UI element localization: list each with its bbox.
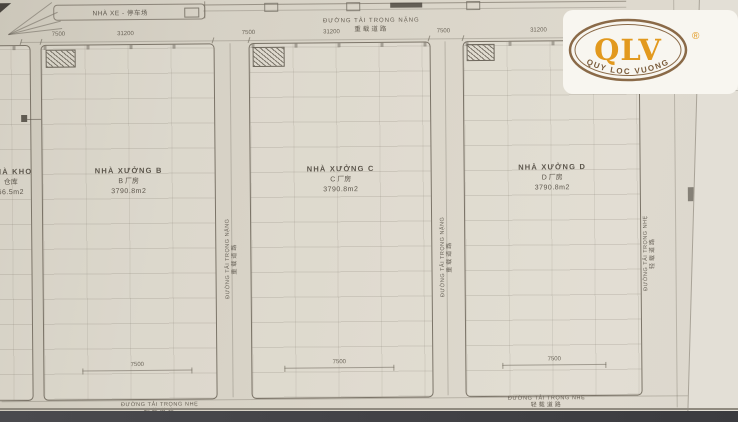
- building-d-inner-dim: 7500: [502, 356, 606, 363]
- detail-marker-leader: [27, 119, 41, 120]
- scanned-site-plan: NHÀ XE - 停车场 ĐƯỜNG TẢI TRỌNG NẶNG 重载道路 7…: [0, 0, 738, 422]
- building-kho-name-cn: 仓库: [0, 177, 41, 188]
- photo-edge-band: [0, 411, 738, 422]
- building-d-inner-dim-value: 7500: [548, 356, 561, 362]
- road-label-between-bc-cn: 重载道路: [232, 199, 241, 319]
- building-b-inner-dim-value: 7500: [131, 362, 144, 368]
- building-kho-area: 66.5m2: [0, 188, 41, 199]
- road-label-right: ĐƯỜNG TẢI TRỌNG NHẸ 轻载道路: [642, 193, 658, 313]
- building-d-stair-block: [467, 44, 495, 61]
- dimension-label: 31200: [105, 31, 145, 37]
- building-c-inner-dim-line: [284, 367, 394, 369]
- building-b: NHÀ XƯỞNG B B 厂房 3790.8m2 7500: [41, 43, 218, 401]
- canopy-column: [264, 3, 278, 12]
- dimension-label: 31200: [311, 29, 351, 35]
- road-label-between-cd: ĐƯỜNG TẢI TRỌNG NẶNG 重载道路: [439, 197, 455, 317]
- dimension-label: 7500: [228, 30, 268, 36]
- canopy-column: [346, 2, 360, 11]
- building-c-inner-dim-value: 7500: [333, 359, 346, 365]
- dimension-label: 31200: [518, 27, 558, 33]
- building-b-inner-dim: 7500: [82, 362, 192, 369]
- road-label-between-cd-cn: 重载道路: [447, 197, 456, 317]
- road-label-between-bc: ĐƯỜNG TẢI TRỌNG NẶNG 重载道路: [224, 199, 240, 319]
- building-kho-name-vi: NHÀ KHO: [0, 166, 41, 178]
- canopy-end-line: [204, 1, 205, 18]
- building-b-label: NHÀ XƯỞNG B B 厂房 3790.8m2: [43, 164, 215, 199]
- parking-structure: NHÀ XE - 停车场: [53, 3, 205, 20]
- building-c-label: NHÀ XƯỞNG C C 厂房 3790.8m2: [251, 162, 431, 197]
- building-c-inner-dim: 7500: [284, 359, 394, 366]
- building-d-inner-dim-line: [502, 364, 606, 366]
- building-c-area: 3790.8m2: [251, 185, 431, 197]
- building-c-stair-block: [253, 47, 285, 67]
- logo-registered-mark: ®: [692, 31, 700, 42]
- scan-corner-artifact: [0, 3, 11, 14]
- building-b-inner-dim-line: [82, 370, 192, 372]
- building-d-area: 3790.8m2: [465, 183, 640, 195]
- dimension-label: 7500: [423, 28, 463, 34]
- building-b-stair-block: [46, 50, 76, 68]
- qlv-logo: QLV ® QUY LOC VUONG: [563, 10, 738, 94]
- building-b-area: 3790.8m2: [43, 187, 215, 199]
- dimension-label: 7500: [38, 32, 78, 38]
- building-kho: NHÀ KHO 仓库 66.5m2: [0, 45, 34, 402]
- canopy-dark-block: [390, 3, 422, 8]
- parking-label: NHÀ XE - 停车场: [54, 7, 186, 18]
- building-d-label: NHÀ XƯỞNG D D 厂房 3790.8m2: [465, 161, 640, 196]
- building-c: NHÀ XƯỞNG C C 厂房 3790.8m2 7500: [249, 41, 434, 399]
- parking-end-room: [184, 7, 199, 17]
- building-kho-label: NHÀ KHO 仓库 66.5m2: [0, 166, 41, 200]
- road-label-right-cn: 轻载道路: [650, 193, 659, 313]
- canopy-column: [466, 1, 480, 10]
- photo-edge-line: [0, 408, 738, 410]
- logo-abbr-text: QLV: [594, 33, 662, 67]
